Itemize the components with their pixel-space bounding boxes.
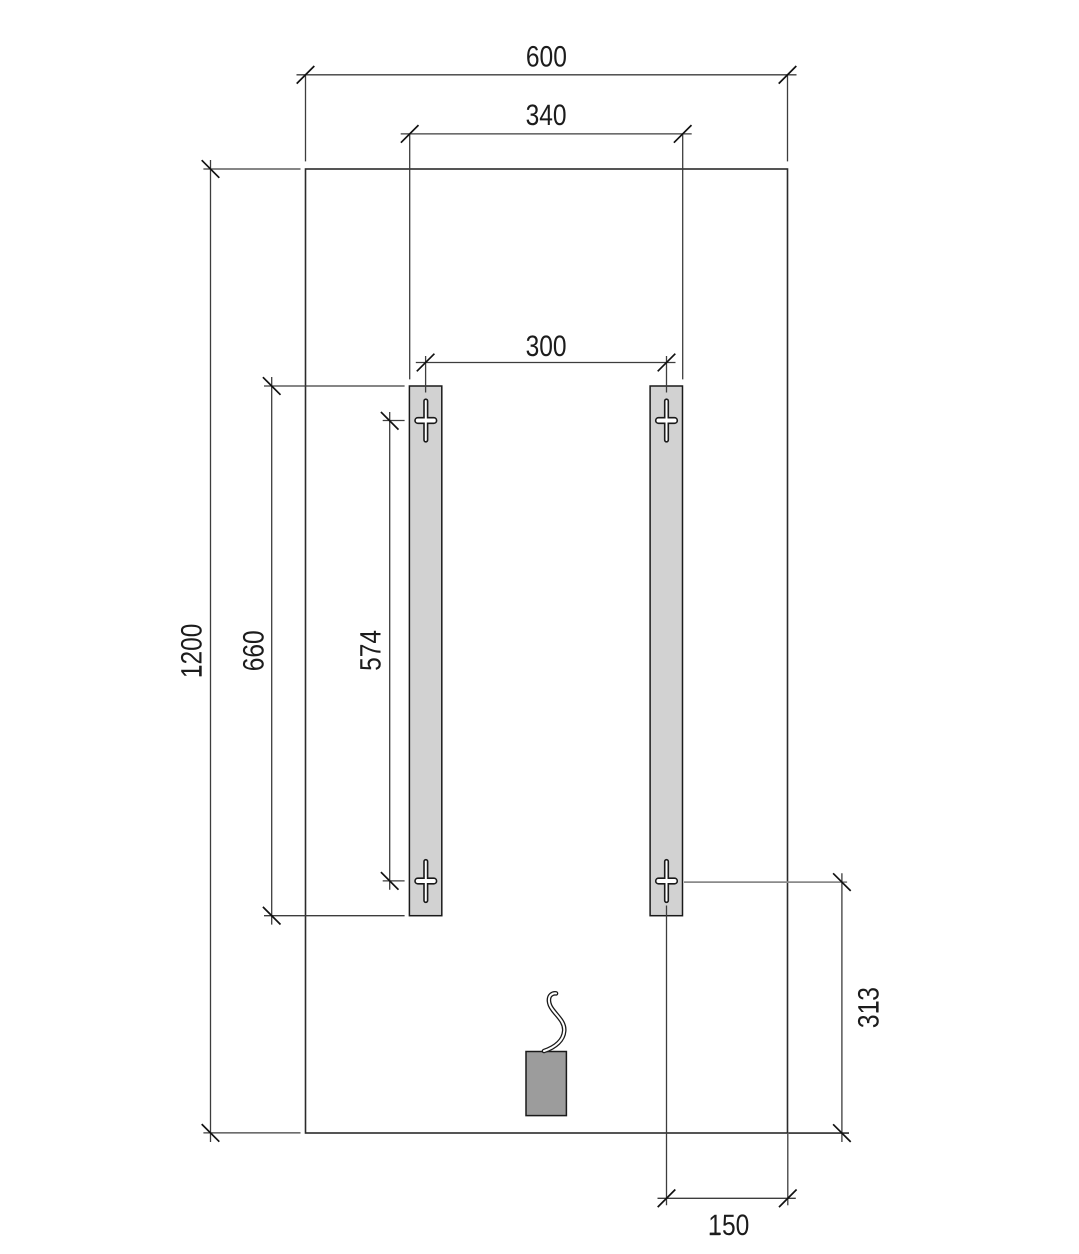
svg-text:150: 150: [708, 1209, 749, 1242]
svg-text:313: 313: [853, 987, 886, 1028]
svg-text:600: 600: [526, 41, 567, 74]
svg-text:340: 340: [526, 99, 567, 132]
svg-text:1200: 1200: [176, 624, 209, 679]
svg-text:300: 300: [526, 330, 567, 363]
svg-text:660: 660: [237, 630, 270, 671]
svg-text:574: 574: [354, 630, 387, 671]
